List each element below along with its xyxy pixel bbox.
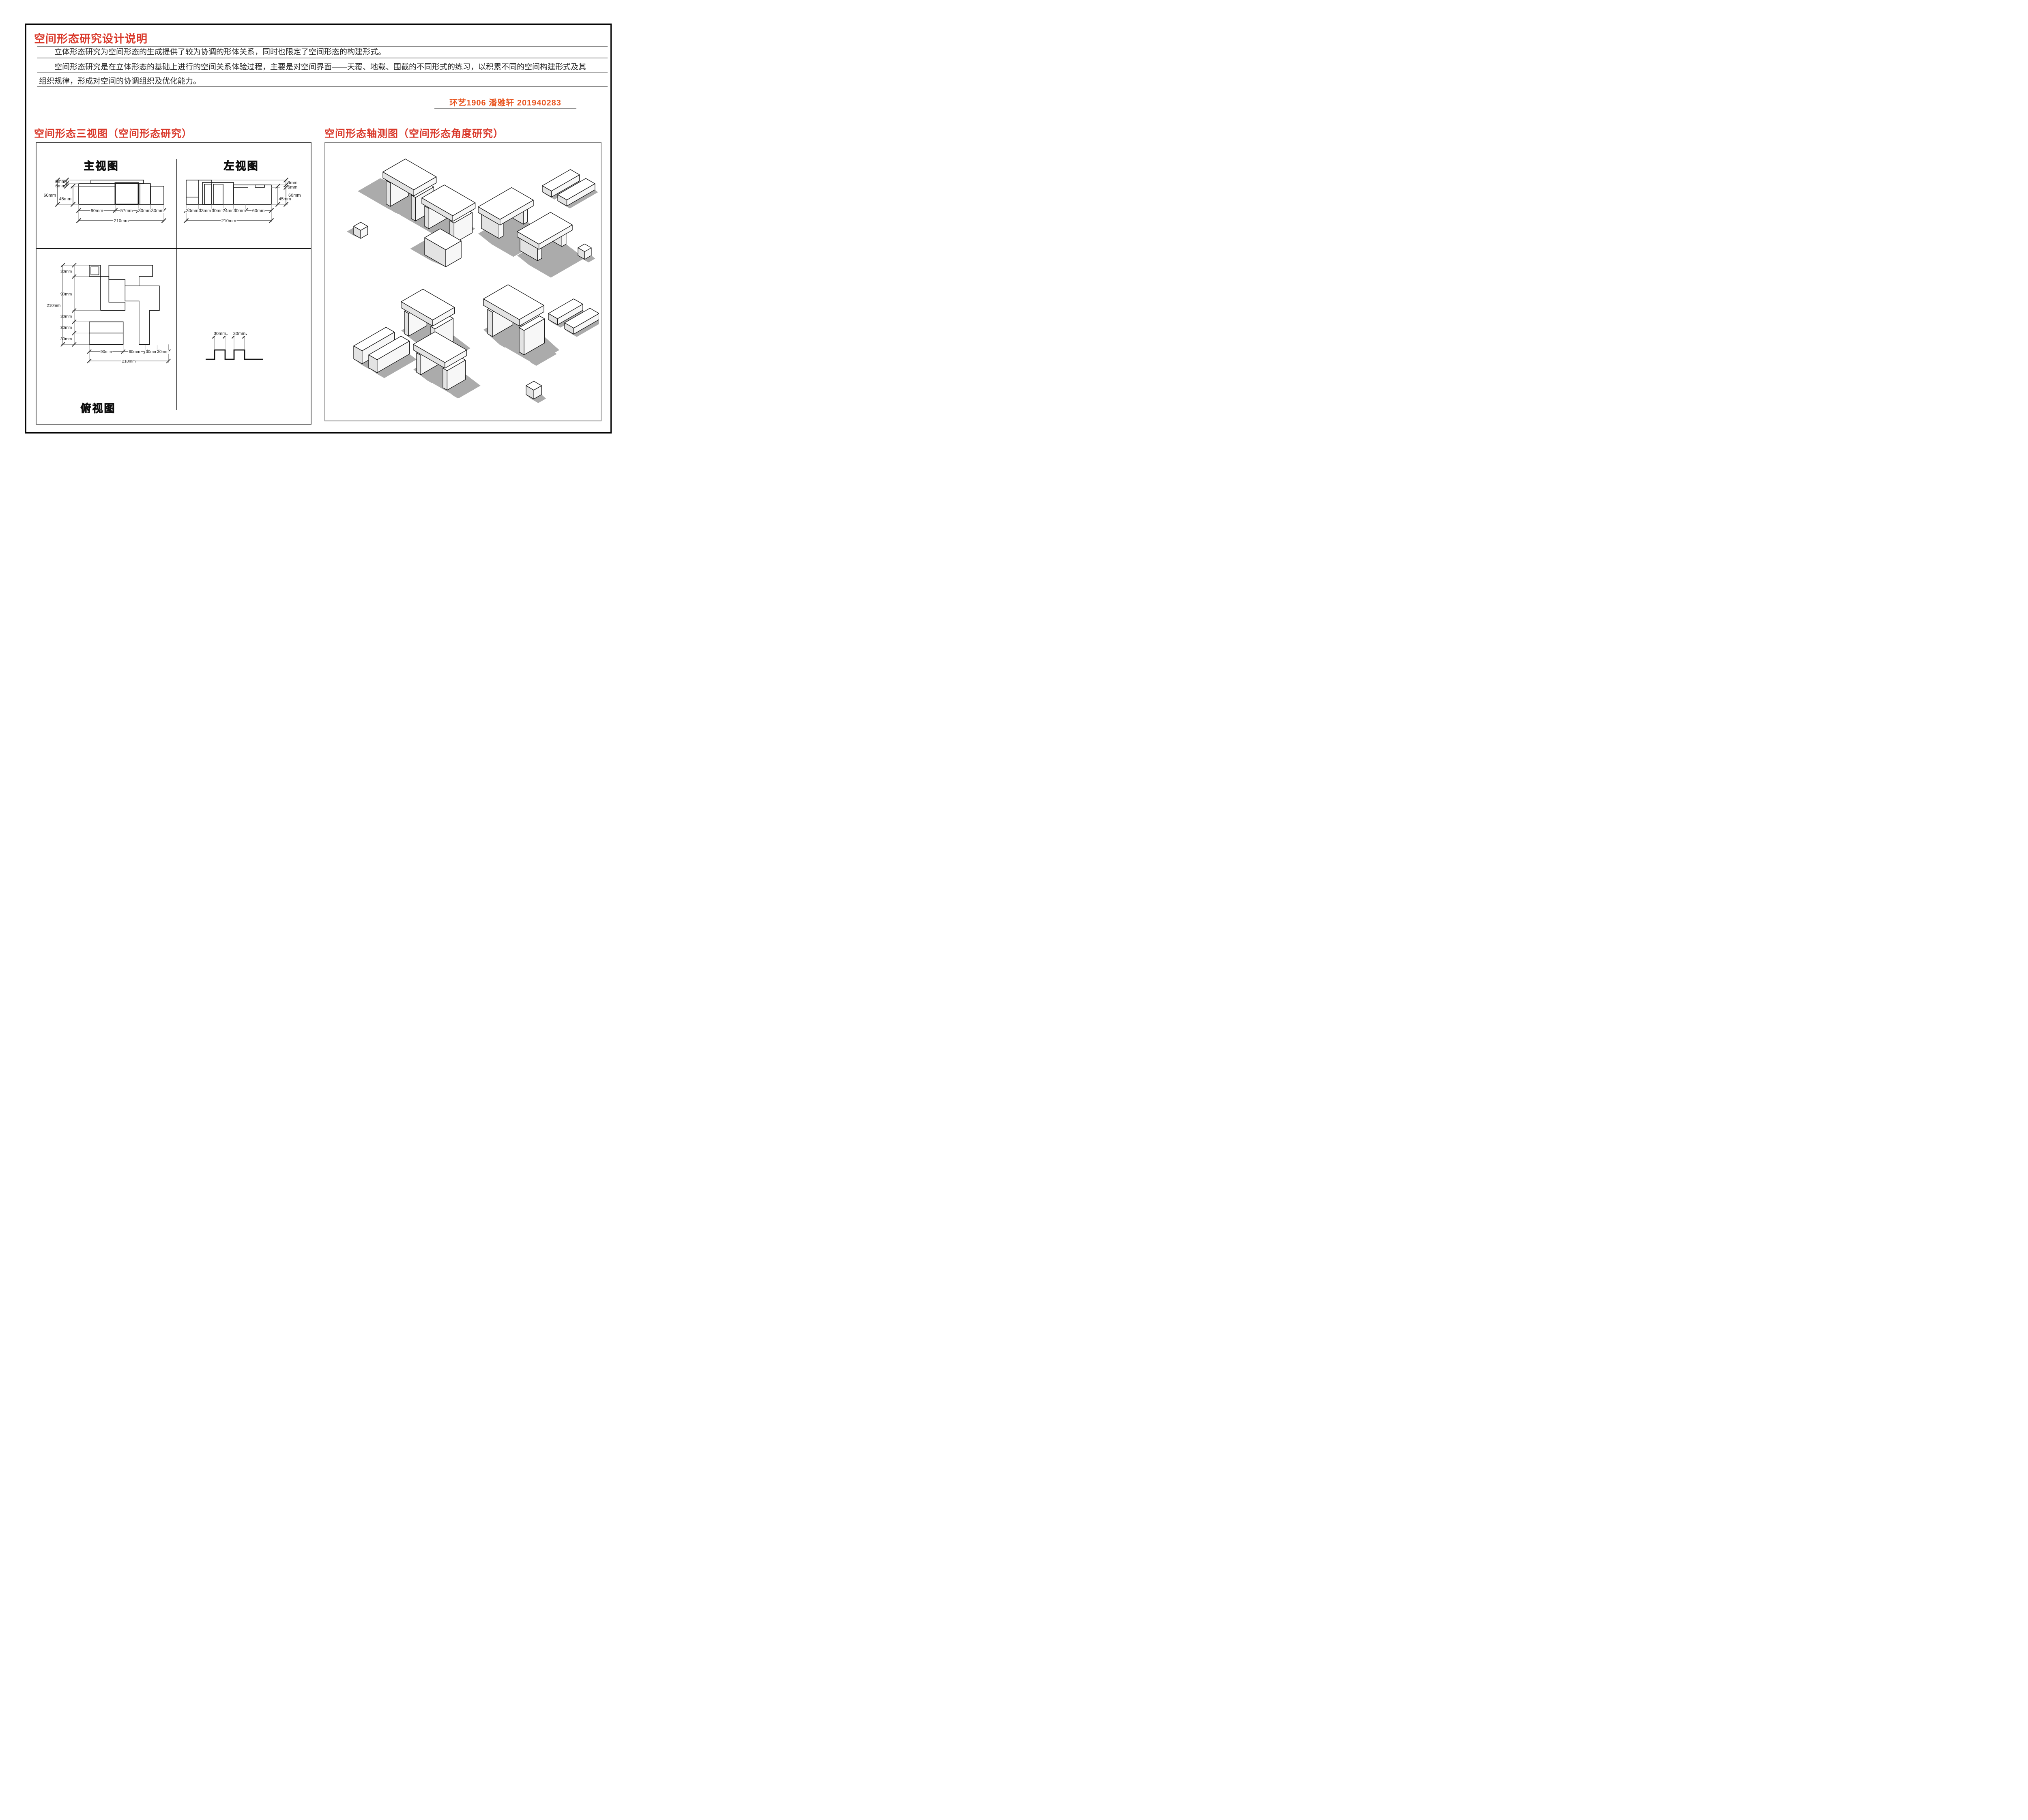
dim-label: 33mm xyxy=(199,208,211,213)
student-info: 环艺1906 潘雅轩 201940283 xyxy=(434,96,576,108)
left-view-title: 左视图 xyxy=(223,160,259,172)
dim-label: 60mm xyxy=(252,208,265,213)
axonometric-panel xyxy=(324,142,602,421)
front-view-title: 主视图 xyxy=(84,160,119,172)
dim-label: 30mm xyxy=(157,350,168,354)
profile-detail-drawing: 30mm 30mm xyxy=(177,249,311,424)
dim-label: 30mm xyxy=(233,331,246,336)
dim-label: 60mm xyxy=(129,350,140,354)
dim-label: 90mm xyxy=(60,292,72,296)
dim-label: 30mm xyxy=(60,314,72,319)
student-info-rule xyxy=(434,108,576,109)
dim-label: 210mm xyxy=(221,219,236,223)
dim-label: 30mm xyxy=(60,337,72,341)
axonometric-canvas xyxy=(325,143,599,419)
section-title-axonometric: 空间形态轴测图（空间形态角度研究） xyxy=(324,126,504,140)
dim-label: 90mm xyxy=(91,208,103,213)
dim-label: 30mm xyxy=(234,208,246,213)
front-view-drawing: 主视图 9mm 6mm xyxy=(37,143,176,248)
axonometric-view-4 xyxy=(483,285,599,403)
dim-label: 210mm xyxy=(47,303,60,308)
dim-label: 30mm xyxy=(214,331,226,336)
dim-label: 90mm xyxy=(101,350,112,354)
text-rule-1 xyxy=(37,58,608,58)
three-view-panel: 主视图 9mm 6mm xyxy=(36,142,312,425)
dim-label: 30mm xyxy=(138,208,151,213)
dim-label: 45mm xyxy=(279,197,291,202)
dim-label: 30mm xyxy=(60,326,72,330)
page-title: 空间形态研究设计说明 xyxy=(34,30,148,46)
top-view-drawing: 30mm 90mm 30mm 30mm 30mm 210mm 90mm 60mm… xyxy=(37,249,176,424)
dim-label: 30mm xyxy=(60,270,72,274)
section-title-three-views: 空间形态三视图（空间形态研究） xyxy=(34,126,192,140)
dim-label: 210mm xyxy=(114,219,129,223)
left-view-drawing: 左视图 9mm 6mm xyxy=(176,143,311,248)
dim-label: 30mm xyxy=(146,350,157,354)
dim-label: 30mm xyxy=(151,208,164,213)
axonometric-view-1 xyxy=(347,159,475,267)
description-paragraph-2: 空间形态研究是在立体形态的基础上进行的空间关系体验过程，主要是对空间界面——天覆… xyxy=(39,60,587,88)
dim-label: 57mm xyxy=(120,208,133,213)
dim-label: 45mm xyxy=(59,197,71,202)
design-sheet: 空间形态研究设计说明 立体形态研究为空间形态的生成提供了较为协调的形体关系，同时… xyxy=(0,0,635,455)
axonometric-view-3 xyxy=(354,289,481,398)
top-view-title: 俯视图 xyxy=(80,402,116,414)
dim-label: 6mm xyxy=(288,185,297,190)
dim-label: 30mm xyxy=(186,208,199,213)
axonometric-view-2 xyxy=(478,170,598,278)
dim-label: 6mm xyxy=(56,184,65,189)
description-paragraph-1: 立体形态研究为空间形态的生成提供了较为协调的形体关系，同时也限定了空间形态的构建… xyxy=(39,46,587,57)
dim-label: 60mm xyxy=(43,193,56,198)
dim-label: 30mm xyxy=(212,208,224,213)
dim-label: 24mm xyxy=(223,208,235,213)
dim-label: 210mm xyxy=(122,359,136,364)
